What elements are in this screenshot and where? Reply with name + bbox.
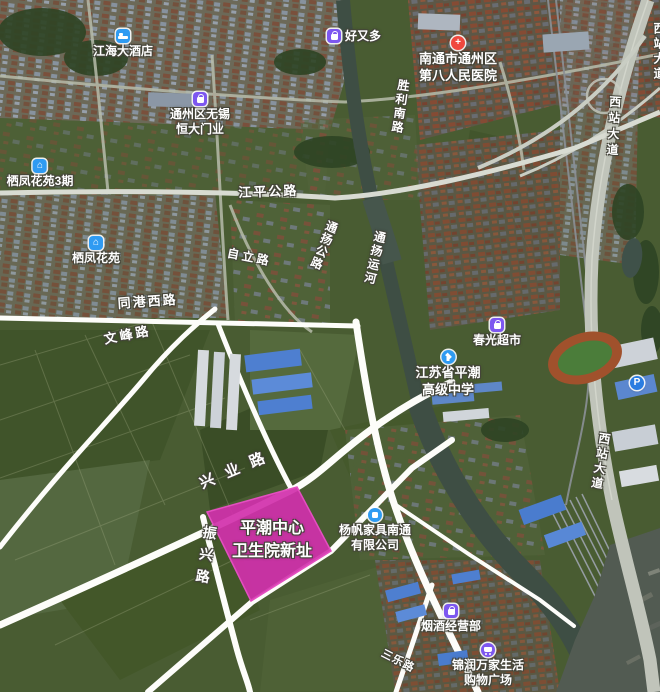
road-label-xizhan-avenue-north: 西站大道 <box>604 95 624 160</box>
poi-label: 好又多 <box>345 29 381 43</box>
poi-parking[interactable]: P <box>630 376 644 390</box>
poi-label: 锦润万家生活 <box>452 658 524 672</box>
road-label-jiangping-highway: 江平公路 <box>238 180 299 201</box>
poi-eighth-peoples-hospital[interactable]: + 南通市通州区 第八人民医院 <box>419 36 497 84</box>
highlight-area-label: 平潮中心 卫生院新址 <box>213 517 331 563</box>
company-icon <box>368 508 382 522</box>
poi-label-line2: 恒大门业 <box>176 122 224 136</box>
poi-label: 南通市通州区 <box>419 51 497 67</box>
poi-label-line2: 高级中学 <box>422 382 474 398</box>
poi-label: 江海大酒店 <box>93 44 153 58</box>
poi-furniture-company[interactable]: 杨帆家具南通 有限公司 <box>339 508 411 552</box>
poi-label: 栖凤花苑3期 <box>7 174 74 188</box>
satellite-map-canvas[interactable]: 平潮中心 卫生院新址 江平公路 胜利南路 通扬公路 通扬运河 同港西路 文峰路 … <box>0 0 660 692</box>
hospital-cross-icon: + <box>451 36 465 50</box>
parking-icon: P <box>630 376 644 390</box>
residence-icon: ⌂ <box>89 236 103 250</box>
shopping-bag-icon <box>444 604 458 618</box>
poi-label-line2: 购物广场 <box>464 673 512 687</box>
shopping-bag-icon <box>193 92 207 106</box>
cart-icon <box>481 643 495 657</box>
residence-icon: ⌂ <box>33 159 47 173</box>
poi-label: 杨帆家具南通 <box>339 523 411 537</box>
highlight-label-line2: 卫生院新址 <box>213 540 331 563</box>
poi-label-line2: 有限公司 <box>351 538 399 552</box>
poi-label: 江苏省平潮 <box>415 365 480 381</box>
poi-qifeng-garden-phase3[interactable]: ⌂ 栖凤花苑3期 <box>7 159 74 188</box>
poi-haoyouduo-store[interactable]: 好又多 <box>327 28 381 43</box>
poi-label: 烟酒经营部 <box>421 619 481 633</box>
map-imagery-layer <box>0 0 660 692</box>
poi-label: 通州区无锡 <box>170 107 230 121</box>
highlight-label-line1: 平潮中心 <box>213 517 331 540</box>
poi-qifeng-garden[interactable]: ⌂ 栖凤花苑 <box>72 236 120 265</box>
poi-label-line2: 第八人民医院 <box>419 68 497 84</box>
shopping-bag-icon <box>327 29 341 43</box>
school-cap-icon <box>441 350 455 364</box>
hotel-bed-icon <box>116 29 130 43</box>
poi-jianghai-hotel[interactable]: 江海大酒店 <box>93 29 153 58</box>
poi-hengda-door-industry[interactable]: 通州区无锡 恒大门业 <box>170 92 230 136</box>
poi-label: 栖凤花苑 <box>72 251 120 265</box>
poi-tobacco-liquor-shop[interactable]: 烟酒经营部 <box>421 604 481 633</box>
poi-jinrun-shopping-plaza[interactable]: 锦润万家生活 购物广场 <box>452 643 524 687</box>
road-label-xizhan-avenue-edge-partial: 西站大道 <box>651 22 660 82</box>
shopping-bag-icon <box>490 318 504 332</box>
poi-chunguang-supermarket[interactable]: 春光超市 <box>473 318 521 347</box>
poi-pingchao-senior-high-school[interactable]: 江苏省平潮 高级中学 <box>415 350 480 398</box>
poi-label: 春光超市 <box>473 333 521 347</box>
